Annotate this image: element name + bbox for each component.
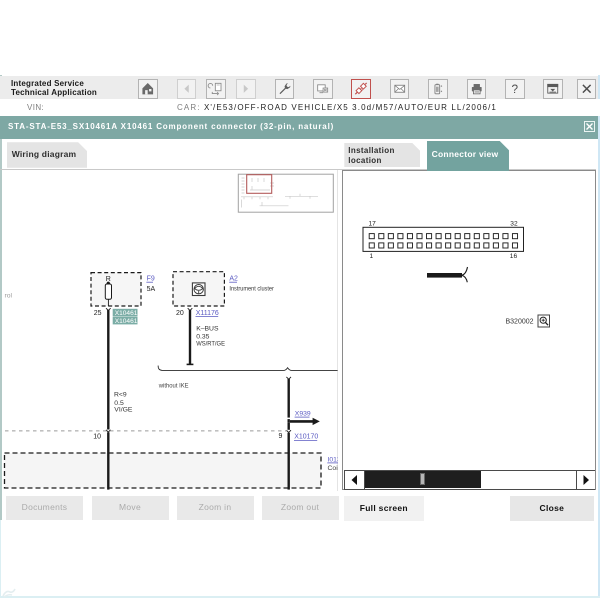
svg-text:K–BUS: K–BUS	[196, 326, 219, 333]
svg-text:10: 10	[93, 434, 101, 441]
svg-text:without IKE: without IKE	[158, 382, 189, 389]
svg-text:X10461: X10461	[115, 318, 138, 325]
svg-text:VI/GE: VI/GE	[114, 406, 133, 413]
svg-text:X10461: X10461	[115, 310, 138, 317]
svg-text:?: ?	[511, 82, 518, 96]
svg-text:X939: X939	[295, 411, 311, 418]
svg-text:20: 20	[176, 310, 184, 317]
svg-text:I013: I013	[328, 456, 339, 463]
svg-text:Instrument cluster: Instrument cluster	[229, 285, 274, 292]
svg-text:17: 17	[369, 220, 377, 227]
svg-text:X10170: X10170	[294, 434, 318, 441]
svg-text:X11176: X11176	[196, 310, 219, 317]
svg-text:R<9: R<9	[114, 391, 127, 398]
svg-text:9: 9	[278, 433, 282, 440]
svg-text:F9: F9	[147, 276, 155, 283]
svg-text:Coil: Coil	[328, 465, 339, 472]
svg-text:WS/RT/GE: WS/RT/GE	[196, 340, 225, 347]
svg-text:32: 32	[510, 220, 518, 227]
svg-text:5A: 5A	[147, 286, 156, 293]
svg-text:16: 16	[510, 253, 518, 260]
svg-text:A2: A2	[229, 276, 238, 283]
svg-text:B320002: B320002	[506, 318, 534, 325]
svg-text:25: 25	[94, 310, 102, 317]
svg-text:1: 1	[370, 253, 374, 260]
svg-text:rol: rol	[5, 293, 13, 300]
